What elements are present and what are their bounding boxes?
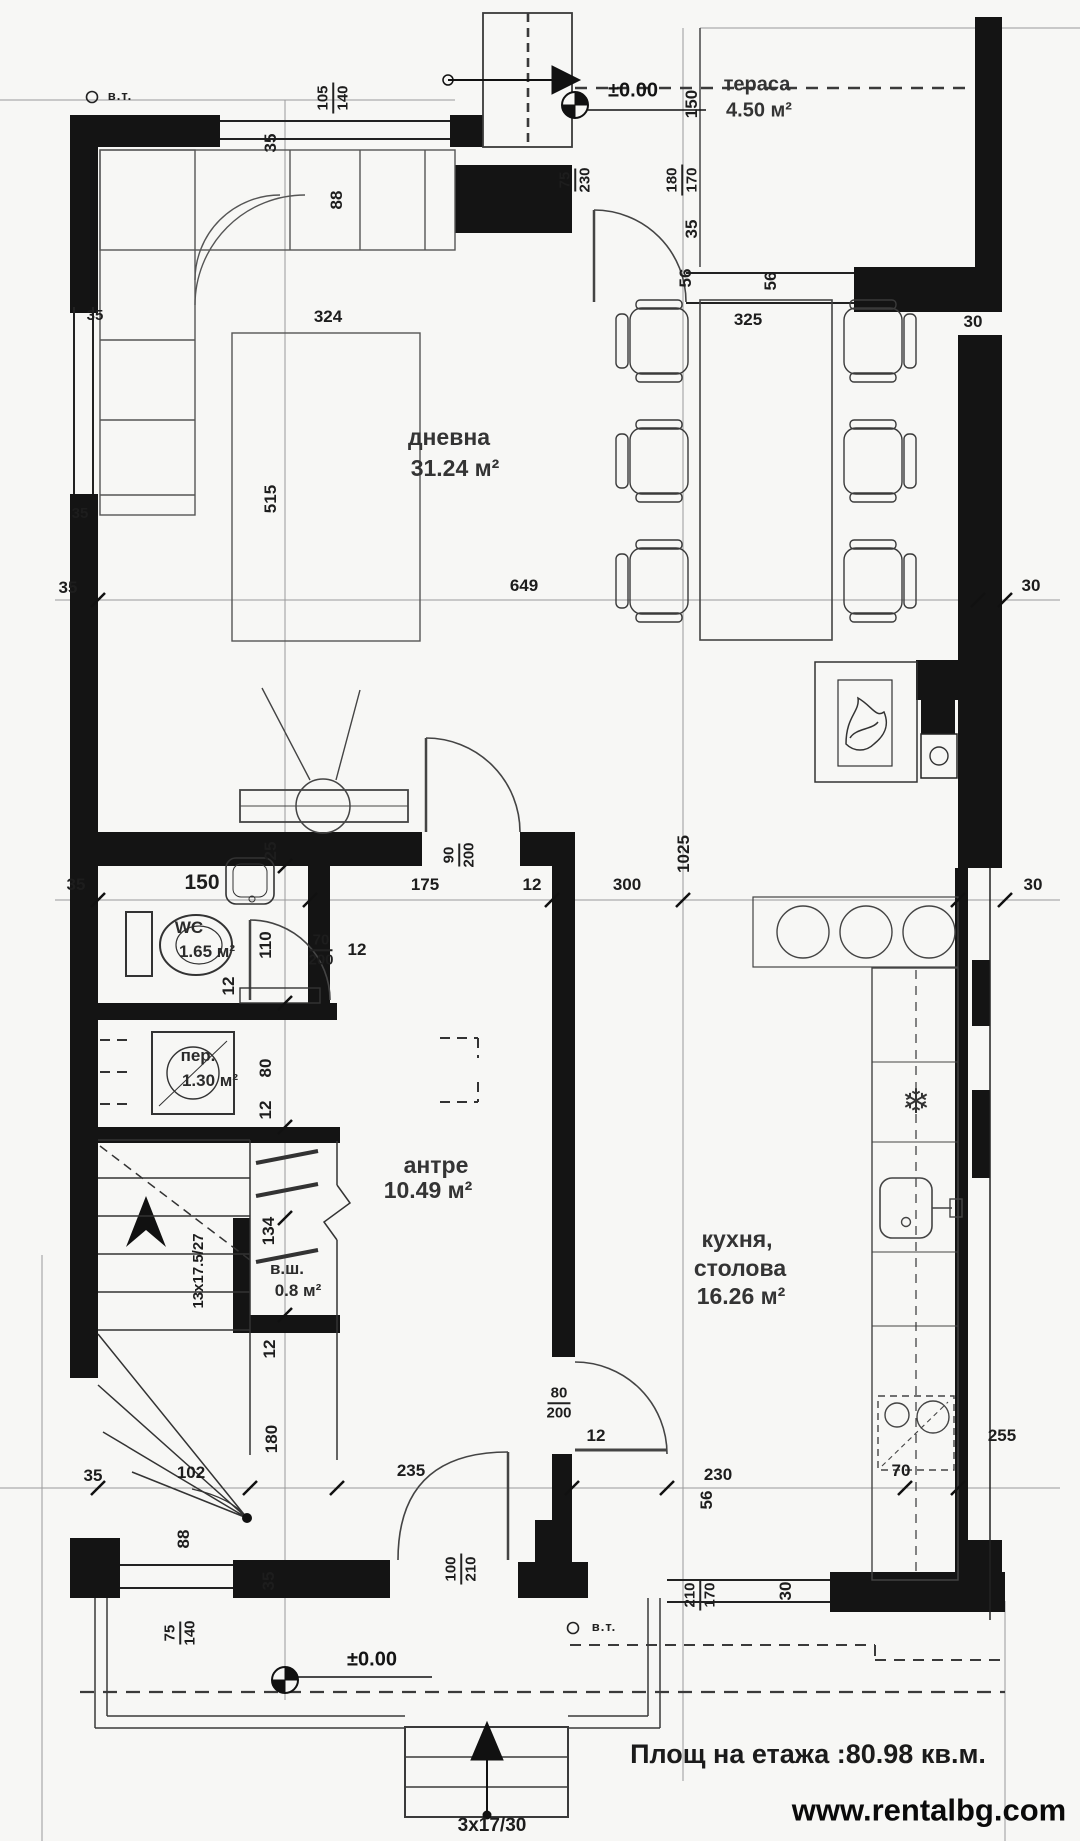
dim-70-200: 70200 [308,932,333,968]
dim-105-140: 105140 [315,82,351,113]
room-closet-area: 0.8 м² [275,1282,322,1300]
dim-56: 56 [762,272,780,291]
dim-75-140: 75140 [162,1620,198,1645]
elevation-bottom: ±0.00 [347,1650,397,1671]
dim-230: 230 [704,1466,732,1484]
room-laundry-name: пер. [181,1047,216,1065]
dim-12: 12 [587,1427,606,1445]
dim-35: 35 [87,308,104,324]
room-kitchen-name1: кухня, [701,1227,772,1251]
dim-12: 12 [523,876,542,894]
stairs-main-label: 13x17.5/27 [191,1233,207,1308]
watermark: www.rentalbg.com [792,1795,1066,1828]
dining-chair [844,420,916,502]
room-wc-name: WC [175,919,203,937]
room-hall-name: антре [404,1153,469,1177]
dim-100-210: 100210 [443,1553,479,1584]
wall-break [324,1141,350,1460]
room-kitchen-area: 16.26 м² [697,1284,786,1308]
dim-255: 255 [988,1427,1016,1445]
tv-unit [240,688,408,833]
room-living-name: дневна [408,425,490,449]
dim-35: 35 [59,579,78,597]
dim-235: 235 [397,1462,425,1480]
dim-134: 134 [260,1217,278,1245]
dim-12: 12 [261,1340,279,1359]
room-laundry-area: 1.30 м² [182,1072,238,1090]
dim-150: 150 [683,90,701,118]
floor-area-note: Площ на етажа :80.98 кв.м. [630,1740,986,1768]
dining-chair [616,420,688,502]
entry-steps-arrow-icon [471,1722,503,1819]
dim-12: 12 [348,941,367,959]
room-kitchen-name2: столова [694,1256,786,1280]
dim-150: 150 [184,872,219,894]
dimension-ticks [91,593,1012,1495]
dim-35: 35 [67,876,86,894]
stairs-entry-label: 3x17/30 [458,1816,527,1836]
dim-30: 30 [1022,577,1041,595]
dim-35: 35 [683,220,701,239]
entry-arrow-icon [443,66,580,94]
dim-80-200: 80200 [546,1385,571,1421]
dim-80: 80 [257,1059,275,1078]
dining-chair [616,300,688,382]
dim-88: 88 [175,1530,193,1549]
room-wc-area: 1.65 м² [179,943,235,961]
room-hall-area: 10.49 м² [384,1178,473,1202]
dim-35: 35 [84,1467,103,1485]
dining-chair [844,540,916,622]
dim-30: 30 [1024,876,1043,894]
room-closet-name: в.ш. [270,1260,304,1278]
walls [70,17,1005,1612]
stairs-up-arrow-icon [126,1196,166,1247]
dim-1025: 1025 [675,835,693,873]
vt-marker-top: в.т. [108,89,132,103]
dim-56: 56 [677,269,695,288]
dim-325: 325 [734,311,762,329]
dim-12: 12 [220,977,238,996]
dim-649: 649 [510,577,538,595]
dim-25: 25 [262,842,280,861]
wc-fixtures [100,858,478,1114]
stairs [98,1140,252,1523]
room-terrace-area: 4.50 м² [726,101,792,122]
dim-30: 30 [964,313,983,331]
laundry-dash-marks [100,1038,478,1104]
elevation-top: ±0.00 [608,81,658,102]
dim-180-170: 180170 [664,164,700,195]
dining-chairs [616,300,916,622]
vt-marker-bottom: в.т. [592,1620,616,1634]
dining-chair [844,300,916,382]
dim-56: 56 [698,1491,716,1510]
room-terrace-name: тераса [724,75,791,96]
plan-drawing [0,0,1080,1841]
dim-70: 70 [892,1462,911,1480]
dim-300: 300 [613,876,641,894]
flame-icon [846,698,886,750]
dim-30: 30 [777,1582,795,1601]
dim-175: 175 [411,876,439,894]
closet-hangers [256,1151,318,1262]
dim-90-200: 90200 [441,842,477,867]
dim-35: 35 [260,1572,278,1591]
dining-table [700,300,832,640]
kitchen-sink [880,1178,962,1238]
dim-75-230: 75230 [557,167,593,192]
dim-180: 180 [263,1425,281,1453]
dim-35: 35 [262,134,280,153]
kitchen-counter [753,897,962,1580]
dining-chair [616,540,688,622]
floor-plan: в.т. 105140 35 88 тераса 4.50 м² ±0.00 1… [0,0,1080,1841]
dim-515: 515 [262,485,280,513]
dim-12: 12 [257,1101,275,1120]
dim-110: 110 [257,931,275,958]
dim-102: 102 [177,1464,205,1482]
dim-210-170: 210170 [682,1579,718,1610]
room-living-area: 31.24 м² [411,456,500,480]
dim-324: 324 [314,308,342,326]
dim-88: 88 [328,191,346,210]
snowflake-icon: ❄ [902,1085,931,1121]
dim-35: 35 [72,506,89,522]
